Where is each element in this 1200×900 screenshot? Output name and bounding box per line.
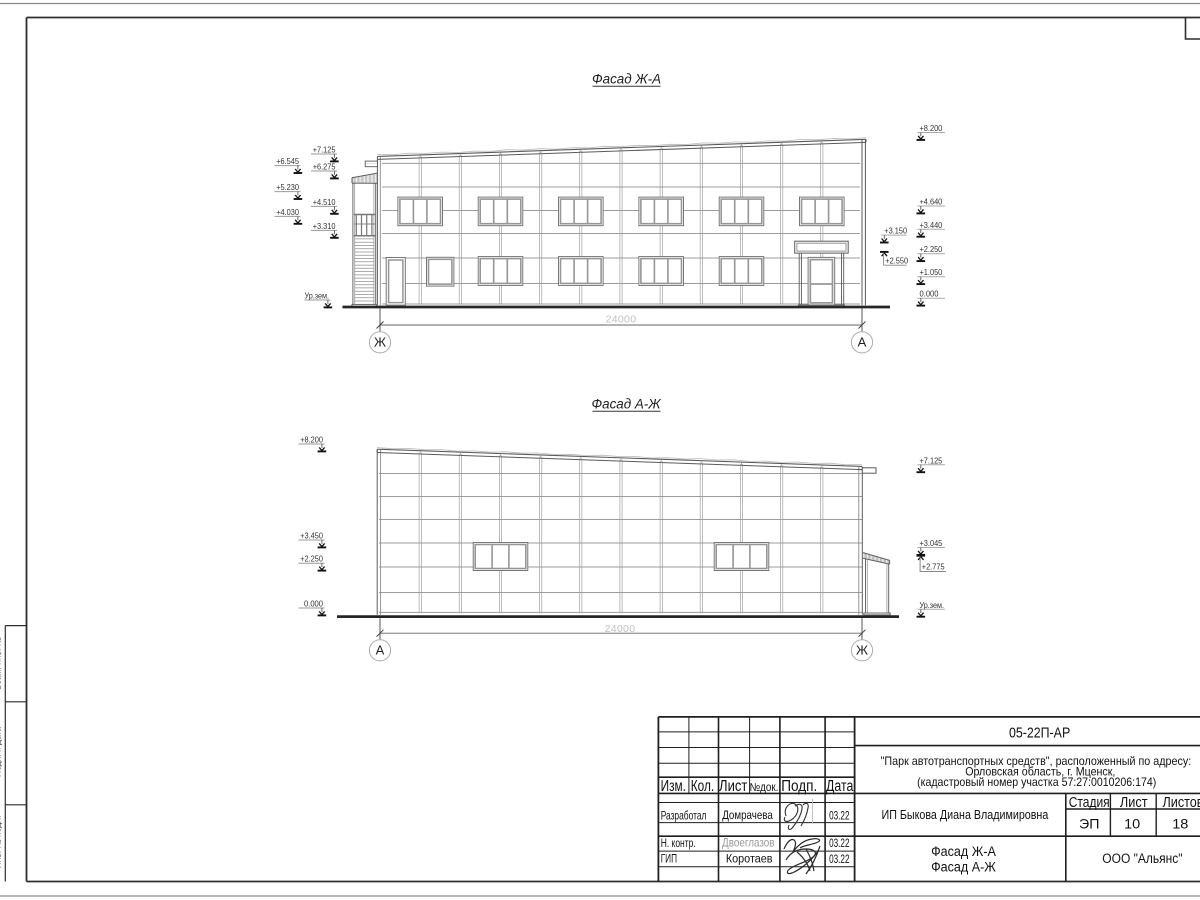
svg-text:+7.125: +7.125 <box>920 456 943 465</box>
svg-text:+3.440: +3.440 <box>920 221 943 230</box>
svg-text:Взам. инв. №: Взам. инв. № <box>0 637 3 690</box>
svg-text:+2.775: +2.775 <box>922 563 945 572</box>
svg-text:ООО "Альянс": ООО "Альянс" <box>1102 851 1182 866</box>
svg-text:0.000: 0.000 <box>304 600 323 609</box>
svg-text:ИП Быкова Диана Владимировна: ИП Быкова Диана Владимировна <box>882 808 1049 822</box>
svg-text:+3.150: +3.150 <box>884 227 907 236</box>
svg-text:+3.045: +3.045 <box>920 539 943 548</box>
svg-text:Стадия: Стадия <box>1069 794 1110 811</box>
svg-text:Разработал: Разработал <box>661 809 707 823</box>
svg-text:+8.200: +8.200 <box>300 436 323 445</box>
svg-text:03.22: 03.22 <box>829 836 850 850</box>
svg-text:Ж: Ж <box>374 334 386 349</box>
svg-text:Н. контр.: Н. контр. <box>661 836 696 850</box>
svg-text:Фасад Ж-А: Фасад Ж-А <box>592 72 661 87</box>
svg-text:+5.230: +5.230 <box>276 183 299 192</box>
svg-text:Инв. № подл.: Инв. № подл. <box>0 816 3 869</box>
svg-text:03.22: 03.22 <box>829 808 850 822</box>
svg-text:Коротаев: Коротаев <box>726 851 773 865</box>
svg-text:Подп.: Подп. <box>781 778 817 795</box>
svg-text:05-22П-АР: 05-22П-АР <box>1009 725 1070 742</box>
svg-text:Домрачева: Домрачева <box>722 808 773 822</box>
svg-text:+1.050: +1.050 <box>920 268 943 277</box>
svg-text:+2.550: +2.550 <box>885 257 908 266</box>
svg-text:0.000: 0.000 <box>920 290 939 299</box>
svg-text:+2.250: +2.250 <box>300 555 323 564</box>
svg-text:Изм.: Изм. <box>661 778 686 795</box>
svg-text:Фасад А-Ж: Фасад А-Ж <box>591 397 661 412</box>
svg-text:24000: 24000 <box>605 623 636 635</box>
svg-text:+2.250: +2.250 <box>920 245 943 254</box>
svg-text:Дата: Дата <box>826 778 854 795</box>
svg-text:24000: 24000 <box>606 314 637 326</box>
svg-text:ГИП: ГИП <box>661 852 677 866</box>
svg-text:+8.200: +8.200 <box>920 124 943 133</box>
svg-text:Двоеглазов: Двоеглазов <box>722 836 775 850</box>
svg-text:10: 10 <box>1124 816 1140 832</box>
svg-text:Подп. и дата: Подп. и дата <box>0 727 3 777</box>
svg-text:+6.545: +6.545 <box>276 157 299 166</box>
svg-text:+4.030: +4.030 <box>276 208 299 217</box>
svg-text:А: А <box>376 642 385 657</box>
svg-text:Фасад Ж-А: Фасад Ж-А <box>931 844 996 859</box>
svg-text:Лист: Лист <box>719 778 747 795</box>
svg-text:Ур.зем.: Ур.зем. <box>305 292 330 301</box>
svg-text:18: 18 <box>1172 816 1188 832</box>
svg-text:ЭП: ЭП <box>1079 816 1099 832</box>
svg-text:+3.450: +3.450 <box>300 532 323 541</box>
svg-text:Ур.зем.: Ур.зем. <box>920 601 945 610</box>
svg-text:А: А <box>858 334 867 349</box>
svg-text:+4.510: +4.510 <box>313 198 336 207</box>
svg-text:(кадастровый номер участка 57:: (кадастровый номер участка 57:27:0010206… <box>917 775 1156 789</box>
svg-text:+7.125: +7.125 <box>313 146 336 155</box>
svg-text:Кол.: Кол. <box>691 778 714 795</box>
svg-text:Фасад А-Ж: Фасад А-Ж <box>931 859 996 874</box>
svg-text:№док.: №док. <box>750 782 779 794</box>
svg-text:Ж: Ж <box>856 642 868 657</box>
svg-text:+4.640: +4.640 <box>920 198 943 207</box>
svg-text:+6.275: +6.275 <box>313 163 336 172</box>
svg-text:Лист: Лист <box>1120 794 1148 811</box>
svg-text:+3.310: +3.310 <box>313 222 336 231</box>
svg-text:Листов: Листов <box>1163 794 1200 811</box>
svg-text:03.22: 03.22 <box>829 852 850 866</box>
